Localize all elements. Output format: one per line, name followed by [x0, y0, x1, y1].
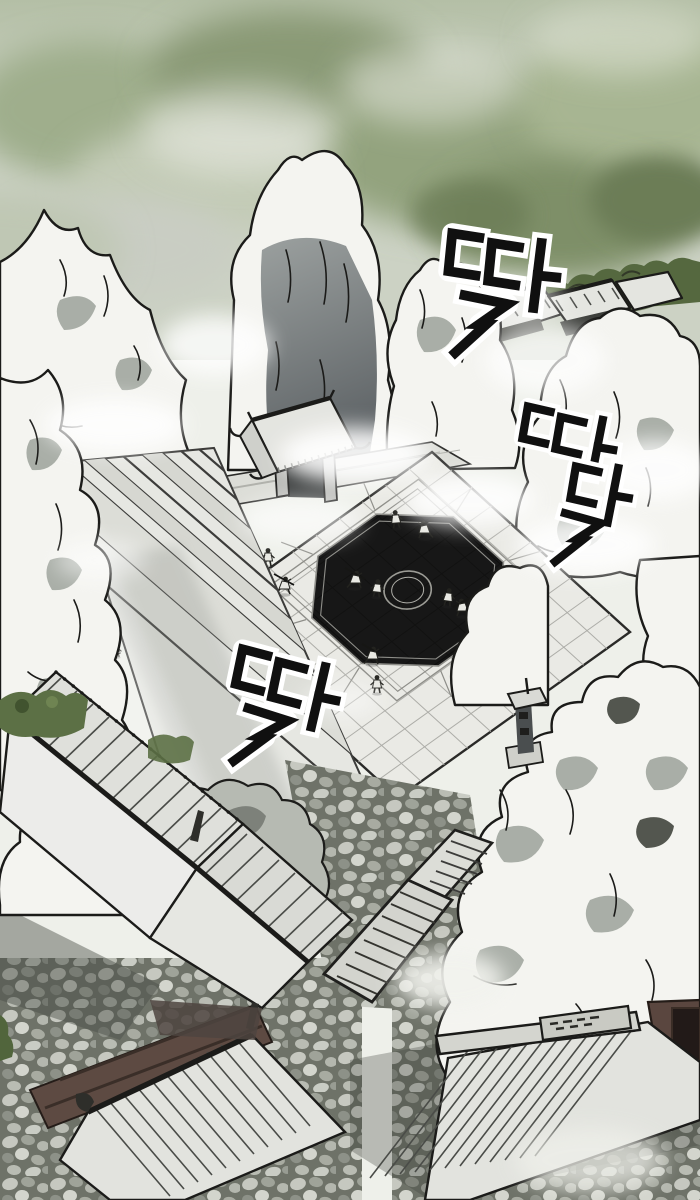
panel-artwork [0, 0, 700, 1200]
manhwa-panel: 딱 따닥 딱 illegible carved glyphs [0, 0, 700, 1200]
